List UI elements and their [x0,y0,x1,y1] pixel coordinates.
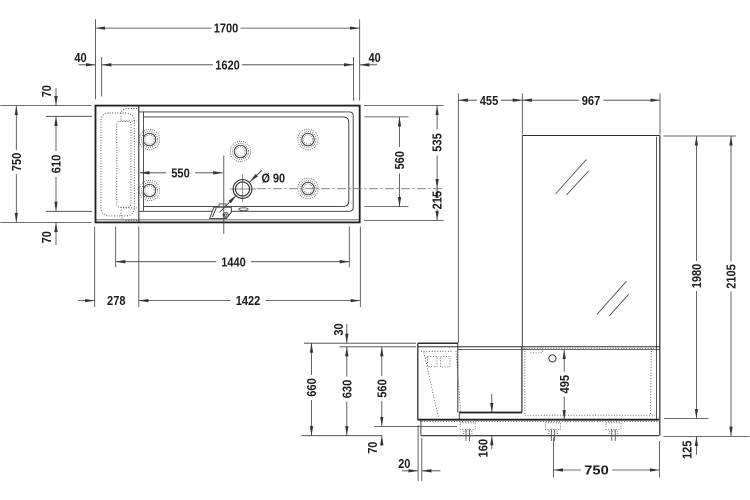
svg-text:550: 550 [171,165,190,180]
svg-text:630: 630 [339,380,354,399]
svg-text:660: 660 [304,378,319,397]
svg-text:967: 967 [582,93,601,108]
svg-text:Ø 90: Ø 90 [262,171,286,186]
svg-text:30: 30 [331,323,346,335]
svg-text:1980: 1980 [689,264,704,289]
svg-text:610: 610 [49,155,64,174]
svg-text:215: 215 [430,191,445,210]
svg-text:1440: 1440 [221,254,246,269]
svg-text:455: 455 [480,93,499,108]
svg-text:750: 750 [9,153,24,172]
svg-text:1700: 1700 [214,21,239,36]
svg-text:20: 20 [398,456,410,471]
svg-text:40: 40 [74,50,86,65]
svg-text:750: 750 [584,463,609,478]
svg-text:560: 560 [392,151,407,170]
svg-text:560: 560 [374,379,389,398]
svg-text:535: 535 [430,133,445,152]
svg-text:70: 70 [39,85,54,97]
svg-text:278: 278 [107,293,126,308]
svg-text:70: 70 [365,442,380,454]
svg-text:40: 40 [369,50,381,65]
svg-text:495: 495 [557,375,572,394]
svg-text:1620: 1620 [215,57,240,72]
svg-text:2105: 2105 [724,264,739,289]
svg-text:1422: 1422 [236,293,261,308]
svg-text:125: 125 [680,441,695,460]
svg-text:70: 70 [39,231,54,243]
svg-text:160: 160 [476,439,491,458]
